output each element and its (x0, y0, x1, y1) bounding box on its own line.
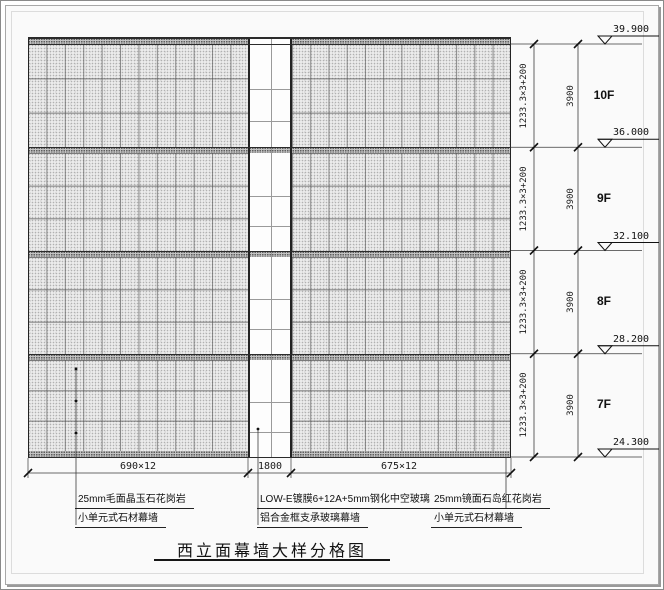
floor-label: 9F (589, 191, 619, 205)
dim-left-stone-span: 690×12 (98, 461, 178, 472)
elevation-triangle-icon (598, 139, 612, 147)
elevation-triangle-icon (598, 243, 612, 251)
elevation-value: 32.100 (599, 231, 663, 242)
dim-glass-span: 1800 (248, 461, 292, 472)
leader-dot (75, 400, 78, 403)
dim-panel-split: 1233.3×3+200 (519, 357, 531, 453)
dim-panel-split: 1233.3×3+200 (519, 254, 531, 350)
leader-dot (75, 368, 78, 371)
leader-dot (75, 432, 78, 435)
annotation-glass-line2: 铝合金框支承玻璃幕墙 (257, 512, 368, 528)
elevation-value: 39.900 (599, 24, 663, 35)
annotation-glass: LOW-E镀膜6+12A+5mm钢化中空玻璃 铝合金框支承玻璃幕墙 (257, 493, 438, 531)
annotation-left-line2: 小单元式石材幕墙 (75, 512, 166, 528)
dim-floor-height: 3900 (566, 254, 578, 350)
facade-drawing-sheet: 1233.3×3+200390010F39.9001233.3×3+200390… (0, 0, 664, 590)
elevation-triangle-icon (598, 36, 612, 44)
dim-panel-split: 1233.3×3+200 (519, 48, 531, 144)
dim-floor-height: 3900 (566, 151, 578, 247)
dim-right-stone-span: 675×12 (359, 461, 439, 472)
elevation-triangle-icon (598, 346, 612, 354)
dim-panel-split: 1233.3×3+200 (519, 151, 531, 247)
annotation-right-line1: 25mm镜面石岛红花岗岩 (431, 493, 550, 509)
elevation-value: 36.000 (599, 127, 663, 138)
leader-dot (257, 428, 260, 431)
annotation-left-stone: 25mm毛面晶玉石花岗岩 小单元式石材幕墙 (75, 493, 194, 531)
annotation-glass-line1: LOW-E镀膜6+12A+5mm钢化中空玻璃 (257, 493, 438, 509)
annotation-right-line2: 小单元式石材幕墙 (431, 512, 522, 528)
drawing-title: 西立面幕墙大样分格图 (156, 537, 388, 561)
floor-label: 10F (589, 88, 619, 102)
annotation-left-line1: 25mm毛面晶玉石花岗岩 (75, 493, 194, 509)
elevation-value: 28.200 (599, 334, 663, 345)
annotation-right-stone: 25mm镜面石岛红花岗岩 小单元式石材幕墙 (431, 493, 550, 531)
drawing-title-underline (154, 559, 390, 561)
dim-floor-height: 3900 (566, 48, 578, 144)
dim-floor-height: 3900 (566, 357, 578, 453)
floor-label: 7F (589, 397, 619, 411)
elevation-triangle-icon (598, 449, 612, 457)
elevation-value-base: 24.300 (599, 437, 663, 448)
floor-label: 8F (589, 294, 619, 308)
